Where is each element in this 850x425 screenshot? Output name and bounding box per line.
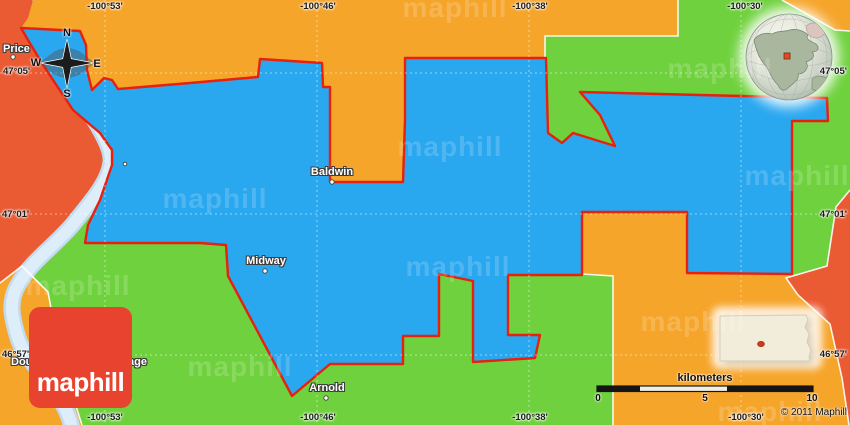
maphill-logo[interactable]: maphill [29,307,132,408]
scale-bar [597,386,813,392]
maphill-logo-text: maphill [29,367,132,398]
marker-price [11,55,15,59]
marker-unnamed [123,162,127,166]
locator-globe [739,7,839,107]
marker-midway [263,269,267,273]
state-inset [712,307,822,369]
marker-arnold [324,396,328,400]
map-canvas: maphill maphill maphill maphill maphill … [0,0,850,425]
marker-baldwin [330,180,334,184]
globe-location-marker [784,53,790,59]
inset-area-marker [758,341,765,346]
inset-state-shape [720,315,811,361]
